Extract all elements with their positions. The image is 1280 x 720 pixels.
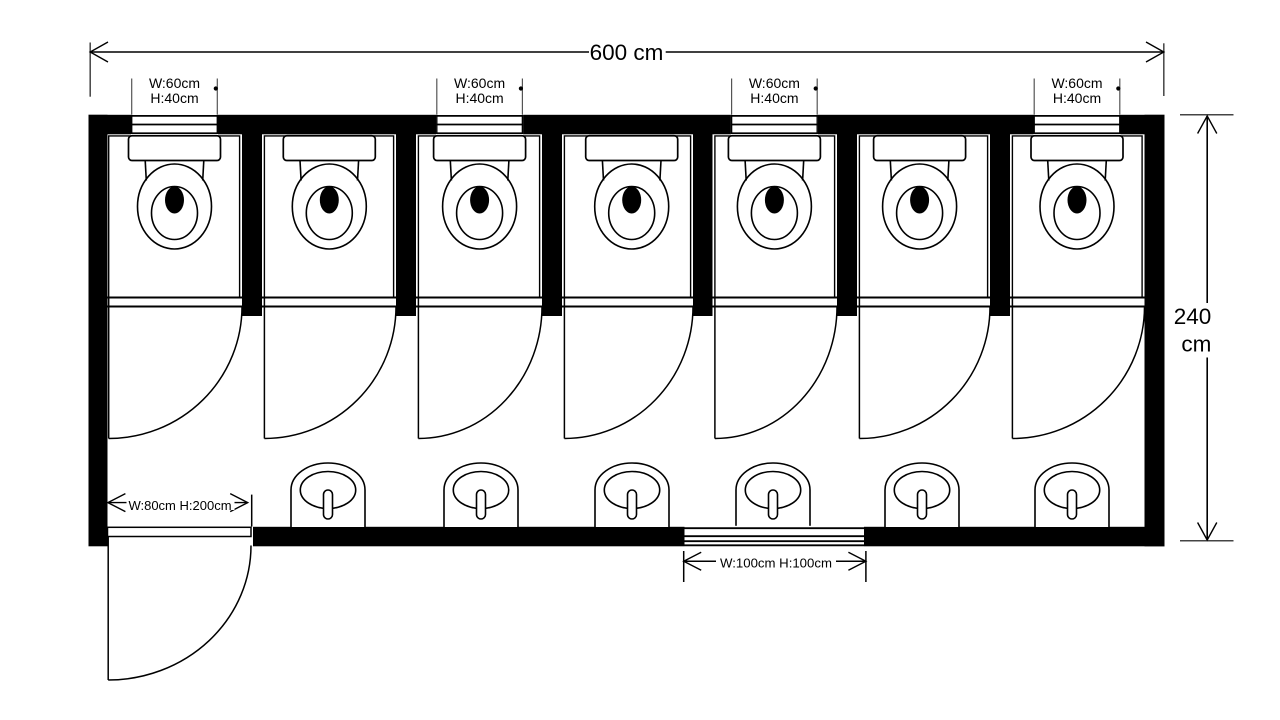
svg-text:H:40cm: H:40cm [150, 90, 198, 106]
svg-text:H:40cm: H:40cm [1053, 90, 1101, 106]
svg-text:H:40cm: H:40cm [750, 90, 798, 106]
svg-text:cm: cm [1181, 332, 1211, 357]
svg-text:W:60cm: W:60cm [1051, 75, 1102, 91]
svg-text:W:80cm H:200cm: W:80cm H:200cm [128, 498, 231, 513]
svg-text:H:40cm: H:40cm [455, 90, 503, 106]
svg-text:W:100cm H:100cm: W:100cm H:100cm [720, 555, 832, 570]
svg-text:600 cm: 600 cm [590, 40, 664, 65]
svg-text:240: 240 [1174, 304, 1212, 329]
svg-text:W:60cm: W:60cm [749, 75, 800, 91]
svg-text:W:60cm: W:60cm [149, 75, 200, 91]
svg-text:W:60cm: W:60cm [454, 75, 505, 91]
